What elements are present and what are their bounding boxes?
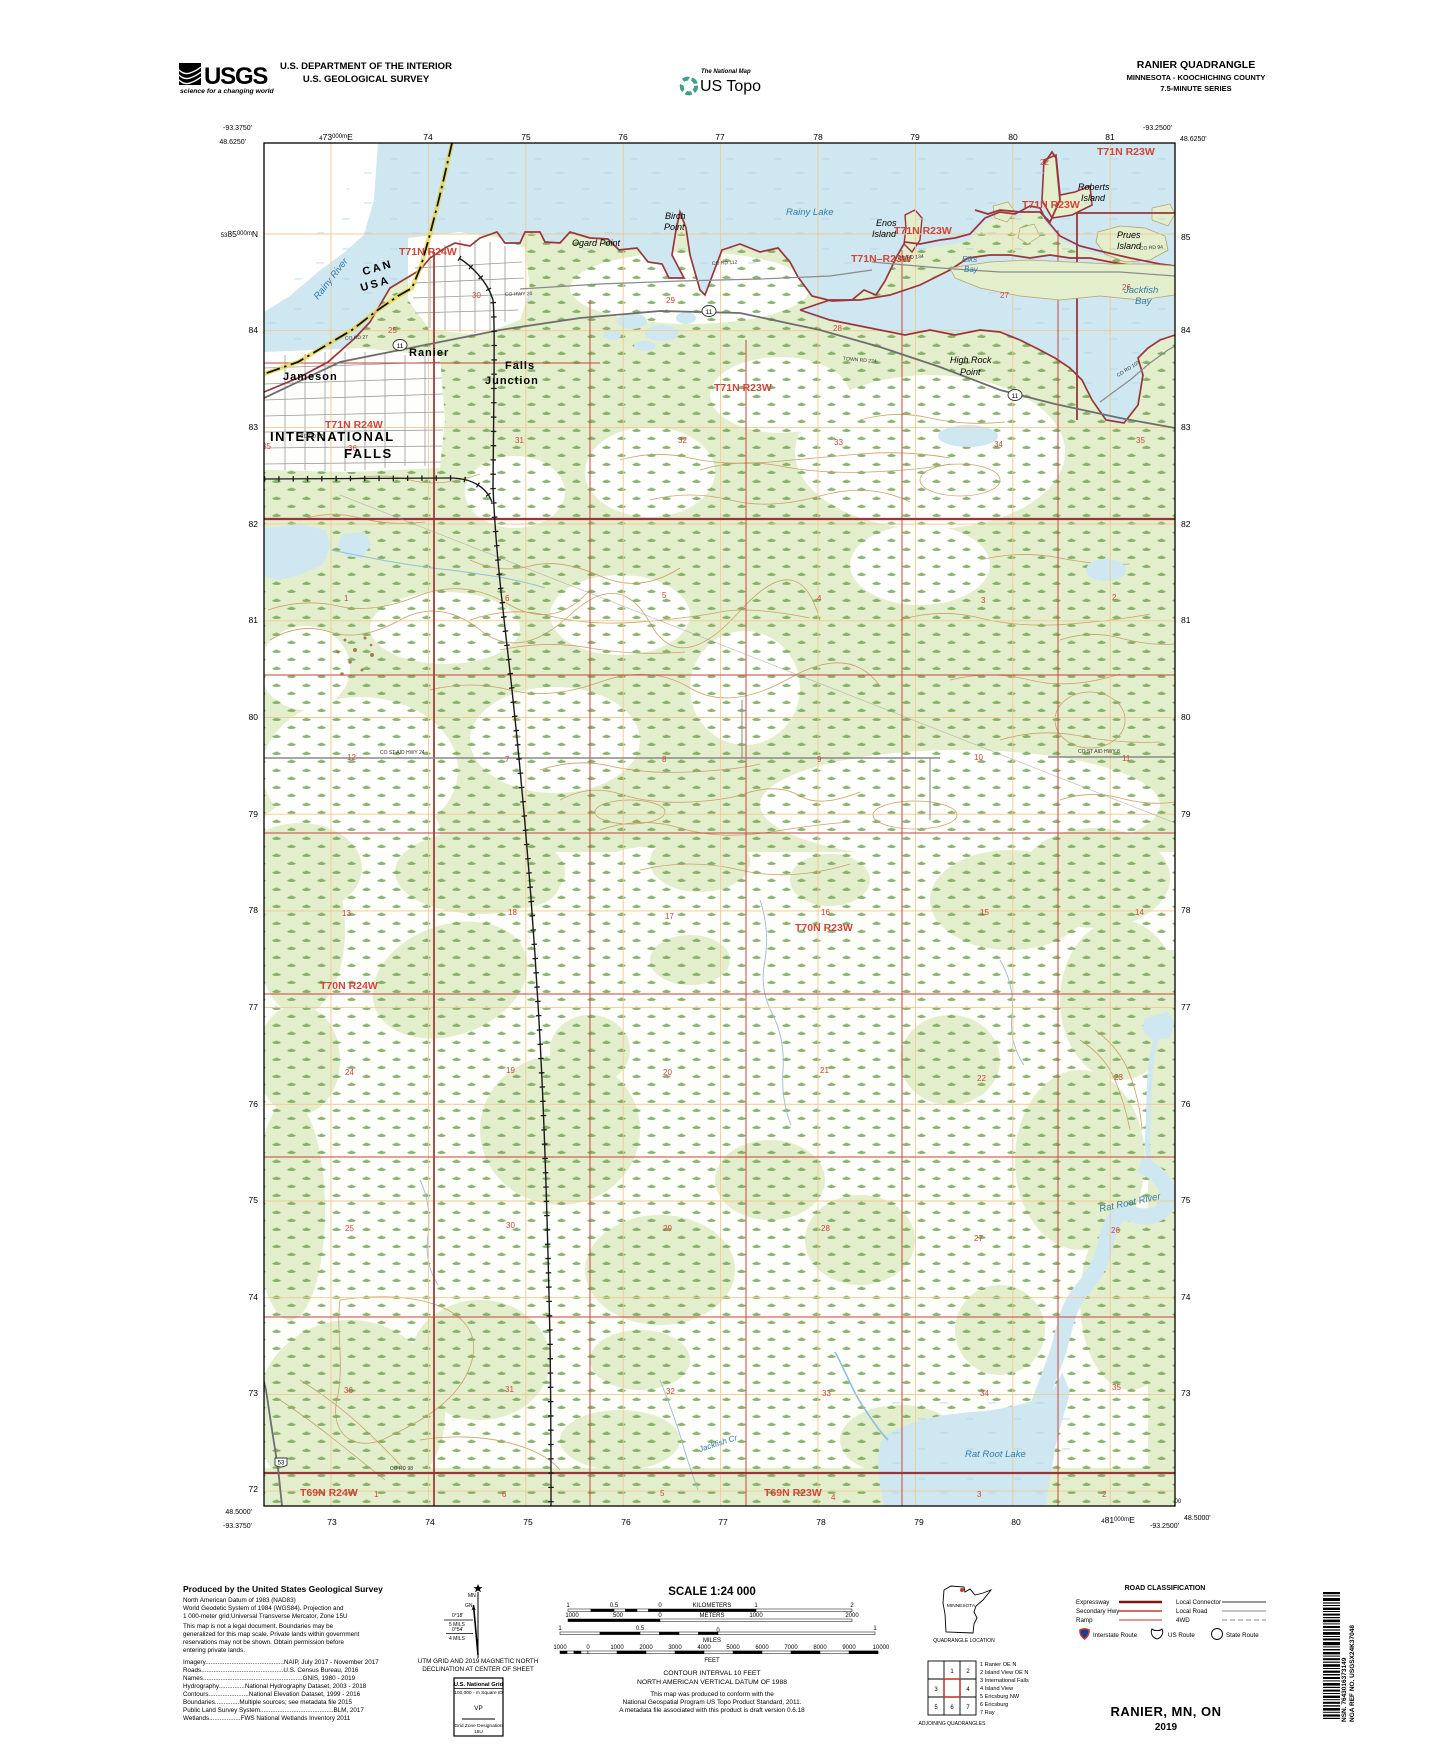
svg-text:T69N R24W: T69N R24W xyxy=(300,1487,358,1499)
svg-text:22: 22 xyxy=(1040,158,1049,167)
svg-text:7000: 7000 xyxy=(784,1645,798,1651)
svg-text:KILOMETERS: KILOMETERS xyxy=(693,1603,732,1609)
svg-text:ROAD CLASSIFICATION: ROAD CLASSIFICATION xyxy=(1125,1585,1206,1592)
svg-text:83: 83 xyxy=(1181,422,1191,432)
svg-text:T70N R23W: T70N R23W xyxy=(795,922,853,934)
svg-text:0.5: 0.5 xyxy=(636,1626,645,1632)
svg-text:Prues: Prues xyxy=(1117,230,1141,240)
svg-text:Bay: Bay xyxy=(964,265,979,274)
svg-text:84: 84 xyxy=(249,325,259,335)
svg-text:GN: GN xyxy=(465,1603,473,1609)
svg-text:High Rock: High Rock xyxy=(950,355,992,365)
svg-text:30: 30 xyxy=(506,1221,515,1230)
svg-text:29: 29 xyxy=(663,1224,672,1233)
svg-text:NORTH AMERICAN VERTICAL DATUM: NORTH AMERICAN VERTICAL DATUM OF 1988 xyxy=(637,1679,787,1686)
svg-text:32: 32 xyxy=(666,1387,675,1396)
svg-text:74: 74 xyxy=(425,1517,435,1527)
svg-text:7: 7 xyxy=(505,755,510,764)
svg-text:34: 34 xyxy=(980,1389,989,1398)
svg-text:-93.3750': -93.3750' xyxy=(223,125,252,132)
svg-text:CO ST AID HWY 24: CO ST AID HWY 24 xyxy=(380,750,425,756)
svg-text:Bay: Bay xyxy=(1135,296,1153,307)
svg-text:T70N R24W: T70N R24W xyxy=(320,980,378,992)
svg-text:29: 29 xyxy=(666,296,675,305)
svg-text:Interstate Route: Interstate Route xyxy=(1093,1632,1138,1639)
svg-text:U.S. National Grid: U.S. National Grid xyxy=(454,1682,504,1688)
svg-text:Ranier: Ranier xyxy=(409,347,449,359)
svg-text:9000: 9000 xyxy=(842,1645,856,1651)
svg-text:78: 78 xyxy=(816,1517,826,1527)
svg-text:80: 80 xyxy=(249,712,259,722)
svg-text:22: 22 xyxy=(977,1074,986,1083)
svg-text:2000: 2000 xyxy=(845,1613,859,1619)
svg-text:Rainy Lake: Rainy Lake xyxy=(786,207,834,218)
svg-text:8: 8 xyxy=(662,755,667,764)
svg-text:30: 30 xyxy=(472,291,481,300)
svg-text:ADJOINING QUADRANGLES: ADJOINING QUADRANGLES xyxy=(919,1721,987,1727)
svg-text:15: 15 xyxy=(980,908,989,917)
svg-text:entering private lands.: entering private lands. xyxy=(183,1647,245,1654)
svg-text:11: 11 xyxy=(397,343,404,350)
svg-text:Point: Point xyxy=(664,222,685,232)
svg-text:Jackfish: Jackfish xyxy=(1123,285,1158,296)
svg-text:This map is not a legal docume: This map is not a legal document. Bounda… xyxy=(183,1623,334,1630)
svg-text:Island: Island xyxy=(872,229,897,239)
svg-text:100,000 - m Square ID: 100,000 - m Square ID xyxy=(454,1690,503,1696)
svg-text:DECLINATION AT CENTER OF SHEET: DECLINATION AT CENTER OF SHEET xyxy=(422,1666,534,1673)
svg-text:UTM GRID AND 2019 MAGNETIC NOR: UTM GRID AND 2019 MAGNETIC NORTH xyxy=(418,1658,539,1665)
svg-text:Falls: Falls xyxy=(505,360,535,372)
svg-text:FALLS: FALLS xyxy=(344,446,393,461)
svg-text:31: 31 xyxy=(515,436,524,445)
svg-text:5: 5 xyxy=(660,1489,665,1498)
svg-text:3 International Falls: 3 International Falls xyxy=(980,1678,1029,1684)
svg-text:48.5000': 48.5000' xyxy=(1184,1515,1211,1522)
svg-text:77: 77 xyxy=(718,1517,728,1527)
svg-text:12: 12 xyxy=(347,753,356,762)
svg-text:North American Datum of 1983 (: North American Datum of 1983 (NAD83) xyxy=(183,1597,296,1604)
svg-text:34: 34 xyxy=(994,440,1003,449)
svg-text:T69N R23W: T69N R23W xyxy=(764,1487,822,1499)
svg-text:4: 4 xyxy=(817,594,822,603)
svg-text:3: 3 xyxy=(981,596,986,605)
svg-text:79: 79 xyxy=(914,1517,924,1527)
svg-text:17: 17 xyxy=(665,912,674,921)
svg-text:USGS: USGS xyxy=(204,63,268,90)
svg-text:75: 75 xyxy=(1181,1195,1191,1205)
svg-text:16: 16 xyxy=(821,908,830,917)
svg-text:Ramp: Ramp xyxy=(1076,1617,1093,1624)
svg-text:10000: 10000 xyxy=(873,1645,890,1651)
svg-text:72: 72 xyxy=(249,1484,259,1494)
svg-text:80: 80 xyxy=(1008,132,1018,142)
svg-text:SCALE 1:24 000: SCALE 1:24 000 xyxy=(668,1586,756,1598)
svg-text:T71N R23W: T71N R23W xyxy=(1022,199,1080,211)
svg-text:81: 81 xyxy=(1105,132,1115,142)
svg-text:Point: Point xyxy=(960,367,981,377)
svg-text:A metadata file associated wit: A metadata file associated with this pro… xyxy=(619,1707,805,1714)
svg-text:13: 13 xyxy=(342,909,351,918)
svg-text:5000: 5000 xyxy=(726,1645,740,1651)
svg-text:82: 82 xyxy=(1181,519,1191,529)
svg-text:6: 6 xyxy=(505,594,510,603)
svg-text:78: 78 xyxy=(1181,905,1191,915)
svg-text:VP: VP xyxy=(474,1705,483,1712)
svg-text:6 Ericsburg: 6 Ericsburg xyxy=(980,1702,1008,1708)
svg-text:25: 25 xyxy=(345,1224,354,1233)
svg-text:75: 75 xyxy=(249,1195,259,1205)
svg-text:27: 27 xyxy=(974,1234,983,1243)
svg-text:76: 76 xyxy=(249,1099,259,1109)
svg-text:23: 23 xyxy=(1114,1073,1123,1082)
svg-text:MINNESOTA - KOOCHICHING COUNTY: MINNESOTA - KOOCHICHING COUNTY xyxy=(1127,73,1266,82)
svg-text:27: 27 xyxy=(1000,291,1009,300)
svg-text:Grid Zone Designation: Grid Zone Designation xyxy=(455,1723,503,1729)
svg-text:83: 83 xyxy=(249,422,259,432)
svg-text:85: 85 xyxy=(1181,232,1191,242)
svg-text:Expressway: Expressway xyxy=(1076,1599,1110,1606)
svg-text:500: 500 xyxy=(613,1613,624,1619)
svg-text:4WD: 4WD xyxy=(1176,1617,1190,1624)
svg-text:T71N R23W: T71N R23W xyxy=(1097,146,1155,158)
svg-text:6: 6 xyxy=(502,1490,507,1499)
svg-text:Hydrography...............Nati: Hydrography...............National Hydro… xyxy=(183,1683,367,1690)
svg-text:1000: 1000 xyxy=(553,1645,567,1651)
svg-text:INTERNATIONAL: INTERNATIONAL xyxy=(270,429,395,444)
svg-text:1: 1 xyxy=(344,594,349,603)
svg-text:74: 74 xyxy=(249,1292,259,1302)
svg-text:7 Ray: 7 Ray xyxy=(980,1710,995,1716)
svg-text:31: 31 xyxy=(505,1385,514,1394)
svg-text:METERS: METERS xyxy=(699,1613,724,1619)
svg-text:Secondary Hwy: Secondary Hwy xyxy=(1076,1608,1120,1615)
svg-text:82: 82 xyxy=(249,519,259,529)
svg-text:7.5-MINUTE SERIES: 7.5-MINUTE SERIES xyxy=(1160,84,1231,93)
svg-text:5 Ericsburg NW: 5 Ericsburg NW xyxy=(980,1694,1020,1700)
svg-text:CO ST AID HWY 8: CO ST AID HWY 8 xyxy=(1078,749,1120,755)
svg-text:Local Connector: Local Connector xyxy=(1176,1599,1221,1606)
svg-text:11: 11 xyxy=(706,309,713,316)
svg-text:14: 14 xyxy=(1135,908,1144,917)
svg-text:81: 81 xyxy=(1181,615,1191,625)
svg-text:78: 78 xyxy=(813,132,823,142)
svg-text:-93.2500': -93.2500' xyxy=(1143,125,1172,132)
svg-text:T71N R24W: T71N R24W xyxy=(399,246,457,258)
svg-text:84: 84 xyxy=(1181,325,1191,335)
svg-text:4: 4 xyxy=(831,1493,836,1502)
svg-text:Ogard Point: Ogard Point xyxy=(572,238,621,248)
svg-text:75: 75 xyxy=(523,1517,533,1527)
svg-text:73: 73 xyxy=(327,1517,337,1527)
svg-text:-93.3750': -93.3750' xyxy=(223,1523,252,1530)
svg-text:26: 26 xyxy=(1111,1226,1120,1235)
svg-text:Boundaries..............Multip: Boundaries..............Multiple sources… xyxy=(183,1699,353,1706)
svg-text:MILES: MILES xyxy=(703,1638,721,1644)
svg-text:Island: Island xyxy=(1081,193,1106,203)
svg-text:science for a changing world: science for a changing world xyxy=(180,88,275,95)
svg-text:FEET: FEET xyxy=(704,1658,720,1664)
svg-text:1 Ranier OE N: 1 Ranier OE N xyxy=(980,1662,1016,1668)
svg-text:1000: 1000 xyxy=(610,1645,624,1651)
svg-text:80: 80 xyxy=(1011,1517,1021,1527)
svg-text:Rat Root Lake: Rat Root Lake xyxy=(965,1449,1026,1460)
svg-text:Elks: Elks xyxy=(962,255,977,264)
svg-text:Public Land Survey Syste: Public Land Survey System...............… xyxy=(183,1707,364,1714)
svg-text:33: 33 xyxy=(822,1389,831,1398)
svg-text:Junction: Junction xyxy=(485,375,539,387)
svg-text:73: 73 xyxy=(249,1388,259,1398)
svg-text:State Route: State Route xyxy=(1226,1632,1259,1639)
svg-text:QUADRANGLE LOCATION: QUADRANGLE LOCATION xyxy=(933,1638,995,1644)
svg-text:Roads.........................: Roads...................................… xyxy=(183,1667,359,1674)
svg-text:48.5000': 48.5000' xyxy=(225,1509,252,1516)
svg-text:T71N R23W: T71N R23W xyxy=(714,382,772,394)
svg-text:33: 33 xyxy=(834,438,843,447)
svg-text:4 Island View: 4 Island View xyxy=(980,1686,1014,1692)
svg-text:MINNESOTA: MINNESOTA xyxy=(947,1603,976,1609)
svg-text:4 MILS: 4 MILS xyxy=(449,1636,466,1642)
svg-text:3: 3 xyxy=(977,1490,982,1499)
svg-text:48.6250': 48.6250' xyxy=(1180,136,1207,143)
svg-text:77: 77 xyxy=(249,1002,259,1012)
svg-text:78: 78 xyxy=(249,905,259,915)
svg-text:2000: 2000 xyxy=(639,1645,653,1651)
svg-text:Jameson: Jameson xyxy=(283,371,338,383)
svg-text:Wetlands..................FWS: Wetlands..................FWS National W… xyxy=(183,1715,351,1722)
svg-text:National Geospatial Program US: National Geospatial Program US Topo Prod… xyxy=(623,1699,802,1706)
svg-text:Enos: Enos xyxy=(876,218,897,228)
svg-text:8000: 8000 xyxy=(813,1645,827,1651)
svg-text:1: 1 xyxy=(374,1490,379,1499)
svg-text:T71N R23W: T71N R23W xyxy=(894,225,952,237)
svg-text:35: 35 xyxy=(1136,436,1145,445)
svg-text:Roberts: Roberts xyxy=(1078,182,1110,192)
svg-text:2019: 2019 xyxy=(1155,1722,1178,1733)
svg-text:28: 28 xyxy=(821,1224,830,1233)
svg-text:79: 79 xyxy=(249,809,259,819)
svg-text:73: 73 xyxy=(1181,1388,1191,1398)
svg-text:MN: MN xyxy=(468,1593,476,1599)
svg-text:The National Map: The National Map xyxy=(701,69,751,75)
svg-text:0°18': 0°18' xyxy=(452,1613,463,1619)
svg-text:RANIER, MN, ON: RANIER, MN, ON xyxy=(1111,1704,1222,1719)
svg-text:Local Road: Local Road xyxy=(1176,1608,1208,1615)
svg-text:CO RD 121: CO RD 121 xyxy=(300,434,326,440)
svg-text:76: 76 xyxy=(618,132,628,142)
svg-text:Imagery.......................: Imagery.................................… xyxy=(183,1659,379,1666)
svg-text:2 Island View OE N: 2 Island View OE N xyxy=(980,1670,1028,1676)
svg-text:21: 21 xyxy=(820,1066,829,1075)
svg-text:1000: 1000 xyxy=(749,1613,763,1619)
svg-text:-93.2500': -93.2500' xyxy=(1150,1523,1179,1530)
svg-text:reservations may not be shown.: reservations may not be shown. Obtain pe… xyxy=(183,1639,344,1646)
svg-text:11: 11 xyxy=(1012,393,1019,400)
svg-text:79: 79 xyxy=(910,132,920,142)
svg-text:NGA REF NO. USGSX24K37048: NGA REF NO. USGSX24K37048 xyxy=(1349,1625,1356,1722)
svg-text:1000: 1000 xyxy=(565,1613,579,1619)
svg-text:9: 9 xyxy=(817,755,822,764)
svg-text:RANIER QUADRANGLE: RANIER QUADRANGLE xyxy=(1137,59,1255,71)
svg-text:Island: Island xyxy=(1117,241,1142,251)
svg-text:19: 19 xyxy=(506,1066,515,1075)
svg-text:U.S. GEOLOGICAL SURVEY: U.S. GEOLOGICAL SURVEY xyxy=(303,74,430,85)
svg-text:80: 80 xyxy=(1181,712,1191,722)
svg-text:6000: 6000 xyxy=(755,1645,769,1651)
svg-text:15U: 15U xyxy=(474,1729,483,1735)
svg-text:77: 77 xyxy=(715,132,725,142)
svg-text:36: 36 xyxy=(344,1386,353,1395)
svg-text:Contours......................: Contours.......................National … xyxy=(183,1691,361,1698)
svg-text:74: 74 xyxy=(1181,1292,1191,1302)
svg-text:Names.........................: Names...................................… xyxy=(183,1675,356,1682)
svg-text:77: 77 xyxy=(1181,1002,1191,1012)
svg-text:53: 53 xyxy=(278,1461,285,1467)
svg-text:1 000-meter grid:Universal Tra: 1 000-meter grid:Universal Transverse Me… xyxy=(183,1613,348,1620)
svg-text:U.S. DEPARTMENT OF THE INTERIO: U.S. DEPARTMENT OF THE INTERIOR xyxy=(280,61,452,72)
svg-text:11: 11 xyxy=(1122,754,1131,763)
svg-text:75: 75 xyxy=(521,132,531,142)
svg-text:2: 2 xyxy=(1102,1490,1107,1499)
svg-text:3000: 3000 xyxy=(668,1645,682,1651)
svg-text:25: 25 xyxy=(388,326,397,335)
svg-text:CONTOUR INTERVAL 10 FEET: CONTOUR INTERVAL 10 FEET xyxy=(663,1670,760,1677)
svg-text:76: 76 xyxy=(621,1517,631,1527)
svg-text:0.5: 0.5 xyxy=(610,1603,619,1609)
svg-text:US Topo: US Topo xyxy=(700,78,761,95)
svg-text:This map was produced to confo: This map was produced to conform with th… xyxy=(650,1691,774,1698)
svg-text:79: 79 xyxy=(1181,809,1191,819)
svg-text:US Route: US Route xyxy=(1168,1632,1195,1639)
svg-text:2: 2 xyxy=(1112,593,1117,602)
svg-text:48.6250': 48.6250' xyxy=(219,139,246,146)
svg-text:76: 76 xyxy=(1181,1099,1191,1109)
svg-text:Birch: Birch xyxy=(665,211,686,221)
svg-text:generalized for this map scale: generalized for this map scale. Private … xyxy=(183,1631,360,1638)
svg-text:35: 35 xyxy=(1112,1383,1121,1392)
svg-text:18: 18 xyxy=(508,908,517,917)
svg-text:28: 28 xyxy=(833,324,842,333)
svg-text:24: 24 xyxy=(345,1068,354,1077)
svg-text:81: 81 xyxy=(249,615,259,625)
svg-text:5: 5 xyxy=(662,591,667,600)
svg-text:World Geodetic System of 1984: World Geodetic System of 1984 (WGS84). P… xyxy=(183,1605,344,1612)
svg-text:Produced by the United States: Produced by the United States Geological… xyxy=(183,1584,383,1594)
svg-text:CO HWY 20: CO HWY 20 xyxy=(505,291,533,298)
svg-text:74: 74 xyxy=(423,132,433,142)
svg-text:32: 32 xyxy=(678,436,687,445)
svg-text:0°54': 0°54' xyxy=(452,1627,463,1633)
svg-text:10: 10 xyxy=(974,753,983,762)
svg-text:NSN. 7643016373149: NSN. 7643016373149 xyxy=(1341,1657,1348,1722)
svg-text:20: 20 xyxy=(663,1068,672,1077)
svg-text:4000: 4000 xyxy=(697,1645,711,1651)
svg-text:CO RD 98: CO RD 98 xyxy=(390,1466,413,1472)
